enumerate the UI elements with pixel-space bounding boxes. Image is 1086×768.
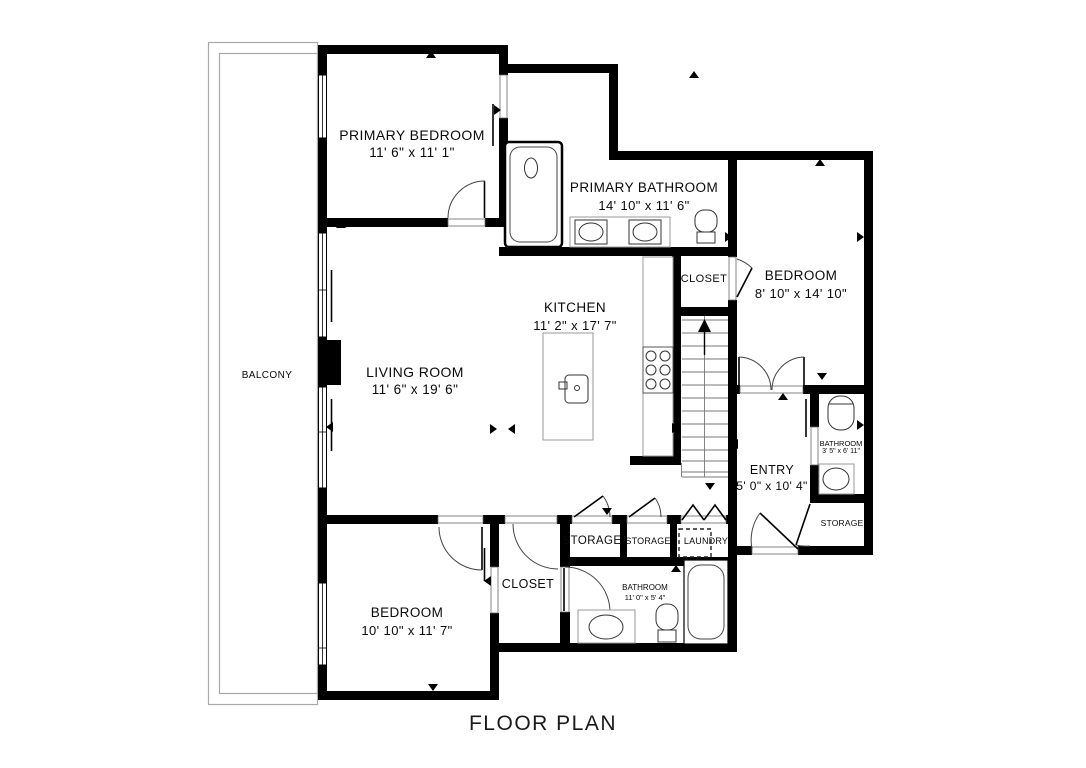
room-dims: 8' 10" x 14' 10" <box>755 285 847 302</box>
room-label-primary-bathroom: PRIMARY BATHROOM 14' 10" x 11' 6" <box>570 179 718 214</box>
room-dims: 11' 2" x 17' 7" <box>533 317 617 334</box>
room-label-entry: ENTRY 5' 0" x 10' 4" <box>736 462 807 494</box>
double-vanity-sink-icon <box>570 217 670 247</box>
room-name: STORAGE <box>625 536 670 548</box>
room-name: BATHROOM <box>820 439 863 448</box>
stove-icon <box>643 347 673 393</box>
room-label-bathroom-lower: BATHROOM 11' 0" x 5' 4" <box>622 583 668 603</box>
floor-plan-drawing <box>0 0 1086 768</box>
vanity-sink-icon <box>578 610 635 643</box>
room-label-bedroom-upper: BEDROOM 8' 10" x 14' 10" <box>755 267 847 302</box>
room-label-primary-bedroom: PRIMARY BEDROOM 11' 6" x 11' 1" <box>339 126 485 162</box>
shower-icon <box>505 142 562 247</box>
room-name: BEDROOM <box>361 604 452 622</box>
bathtub-icon <box>684 560 728 644</box>
room-label-kitchen: KITCHEN 11' 2" x 17' 7" <box>533 299 617 334</box>
room-name: PRIMARY BATHROOM <box>570 179 718 197</box>
room-name: CLOSET <box>681 272 727 287</box>
stair-direction-arrow <box>698 319 711 355</box>
room-dims: 11' 0" x 5' 4" <box>622 593 668 603</box>
toilet-icon <box>656 604 678 642</box>
room-dims: 14' 10" x 11' 6" <box>570 197 718 214</box>
room-dims: 5' 0" x 10' 4" <box>736 479 807 495</box>
room-label-closet-lower: CLOSET <box>502 576 554 593</box>
room-dims: 10' 10" x 11' 7" <box>361 622 452 639</box>
room-dims: 3' 5" x 6' 11" <box>820 448 863 457</box>
room-label-storage-1: STORAGE <box>563 534 622 549</box>
room-name: BALCONY <box>242 369 293 382</box>
floor-plan: PRIMARY BEDROOM 11' 6" x 11' 1" PRIMARY … <box>0 0 1086 768</box>
room-name: BEDROOM <box>755 267 847 285</box>
room-name: CLOSET <box>502 576 554 593</box>
room-dims: 11' 6" x 19' 6" <box>366 381 464 399</box>
room-name: LAUNDRY <box>684 536 728 548</box>
room-label-bathroom-right: BATHROOM 3' 5" x 6' 11" <box>820 439 863 457</box>
room-label-storage-right: STORAGE <box>821 518 864 529</box>
room-dims: 11' 6" x 11' 1" <box>339 144 485 162</box>
pedestal-sink-icon <box>828 396 854 430</box>
room-name: ENTRY <box>736 462 807 479</box>
room-label-bedroom-lower: BEDROOM 10' 10" x 11' 7" <box>361 604 452 639</box>
room-label-balcony: BALCONY <box>242 369 293 382</box>
floor-plan-title: FLOOR PLAN <box>469 712 617 736</box>
toilet-icon <box>695 210 717 243</box>
room-name: PRIMARY BEDROOM <box>339 126 485 144</box>
room-name: LIVING ROOM <box>366 363 464 381</box>
toilet-icon <box>819 464 854 494</box>
room-name: STORAGE <box>821 518 864 529</box>
room-label-storage-2: STORAGE <box>625 536 670 548</box>
kitchen-island <box>543 333 593 440</box>
room-label-living-room: LIVING ROOM 11' 6" x 19' 6" <box>366 363 464 399</box>
room-name: BATHROOM <box>622 583 668 593</box>
fireplace <box>318 340 341 385</box>
room-label-closet-upper: CLOSET <box>681 272 727 287</box>
room-name: STORAGE <box>563 534 622 549</box>
room-name: KITCHEN <box>533 299 617 317</box>
room-label-laundry: LAUNDRY <box>684 536 728 548</box>
